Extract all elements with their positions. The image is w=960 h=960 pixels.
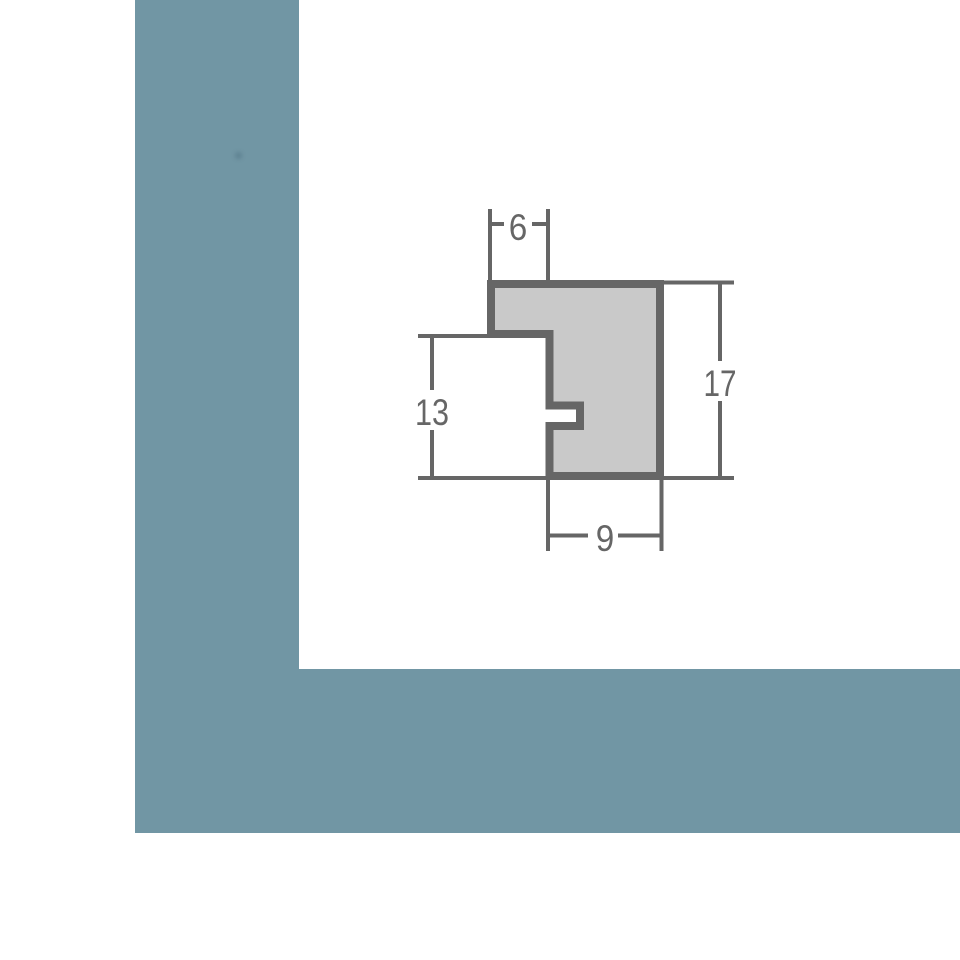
svg-text:9: 9 [596,518,615,559]
svg-text:13: 13 [415,392,449,433]
svg-text:6: 6 [509,207,528,248]
svg-text:17: 17 [704,363,737,404]
